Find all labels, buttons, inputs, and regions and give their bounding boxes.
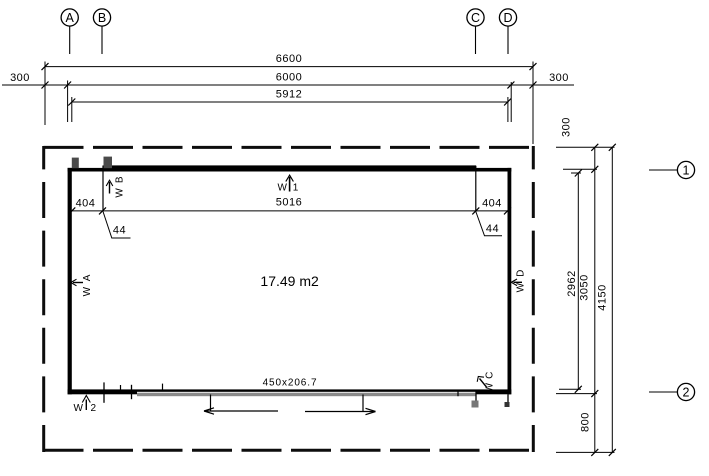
svg-text:WB: WB <box>115 171 126 197</box>
svg-text:404: 404 <box>482 197 502 209</box>
svg-text:C: C <box>471 11 480 25</box>
svg-text:2962: 2962 <box>566 270 578 296</box>
svg-text:5912: 5912 <box>276 89 302 101</box>
svg-text:3050: 3050 <box>579 274 591 300</box>
svg-text:W: W <box>74 403 84 414</box>
svg-text:44: 44 <box>486 223 499 235</box>
svg-text:5016: 5016 <box>276 197 302 209</box>
svg-text:1: 1 <box>683 164 690 178</box>
svg-text:6000: 6000 <box>276 72 302 84</box>
svg-text:WA: WA <box>82 269 93 297</box>
svg-text:1: 1 <box>293 183 299 194</box>
svg-text:404: 404 <box>76 197 96 209</box>
svg-text:2: 2 <box>683 386 690 400</box>
svg-text:44: 44 <box>113 225 126 237</box>
svg-text:2: 2 <box>91 403 97 414</box>
svg-text:300: 300 <box>10 72 30 84</box>
svg-text:W: W <box>278 183 288 194</box>
svg-text:800: 800 <box>580 412 592 432</box>
svg-text:4150: 4150 <box>597 284 609 310</box>
svg-text:WD: WD <box>516 264 527 293</box>
svg-text:6600: 6600 <box>276 53 302 65</box>
svg-text:17.49 m2: 17.49 m2 <box>260 273 319 289</box>
svg-text:450x206.7: 450x206.7 <box>263 377 318 388</box>
svg-text:300: 300 <box>561 117 573 137</box>
svg-text:D: D <box>503 11 512 25</box>
svg-text:A: A <box>66 11 75 25</box>
svg-text:B: B <box>98 11 106 25</box>
svg-text:300: 300 <box>549 72 569 84</box>
svg-text:WC: WC <box>485 368 496 393</box>
